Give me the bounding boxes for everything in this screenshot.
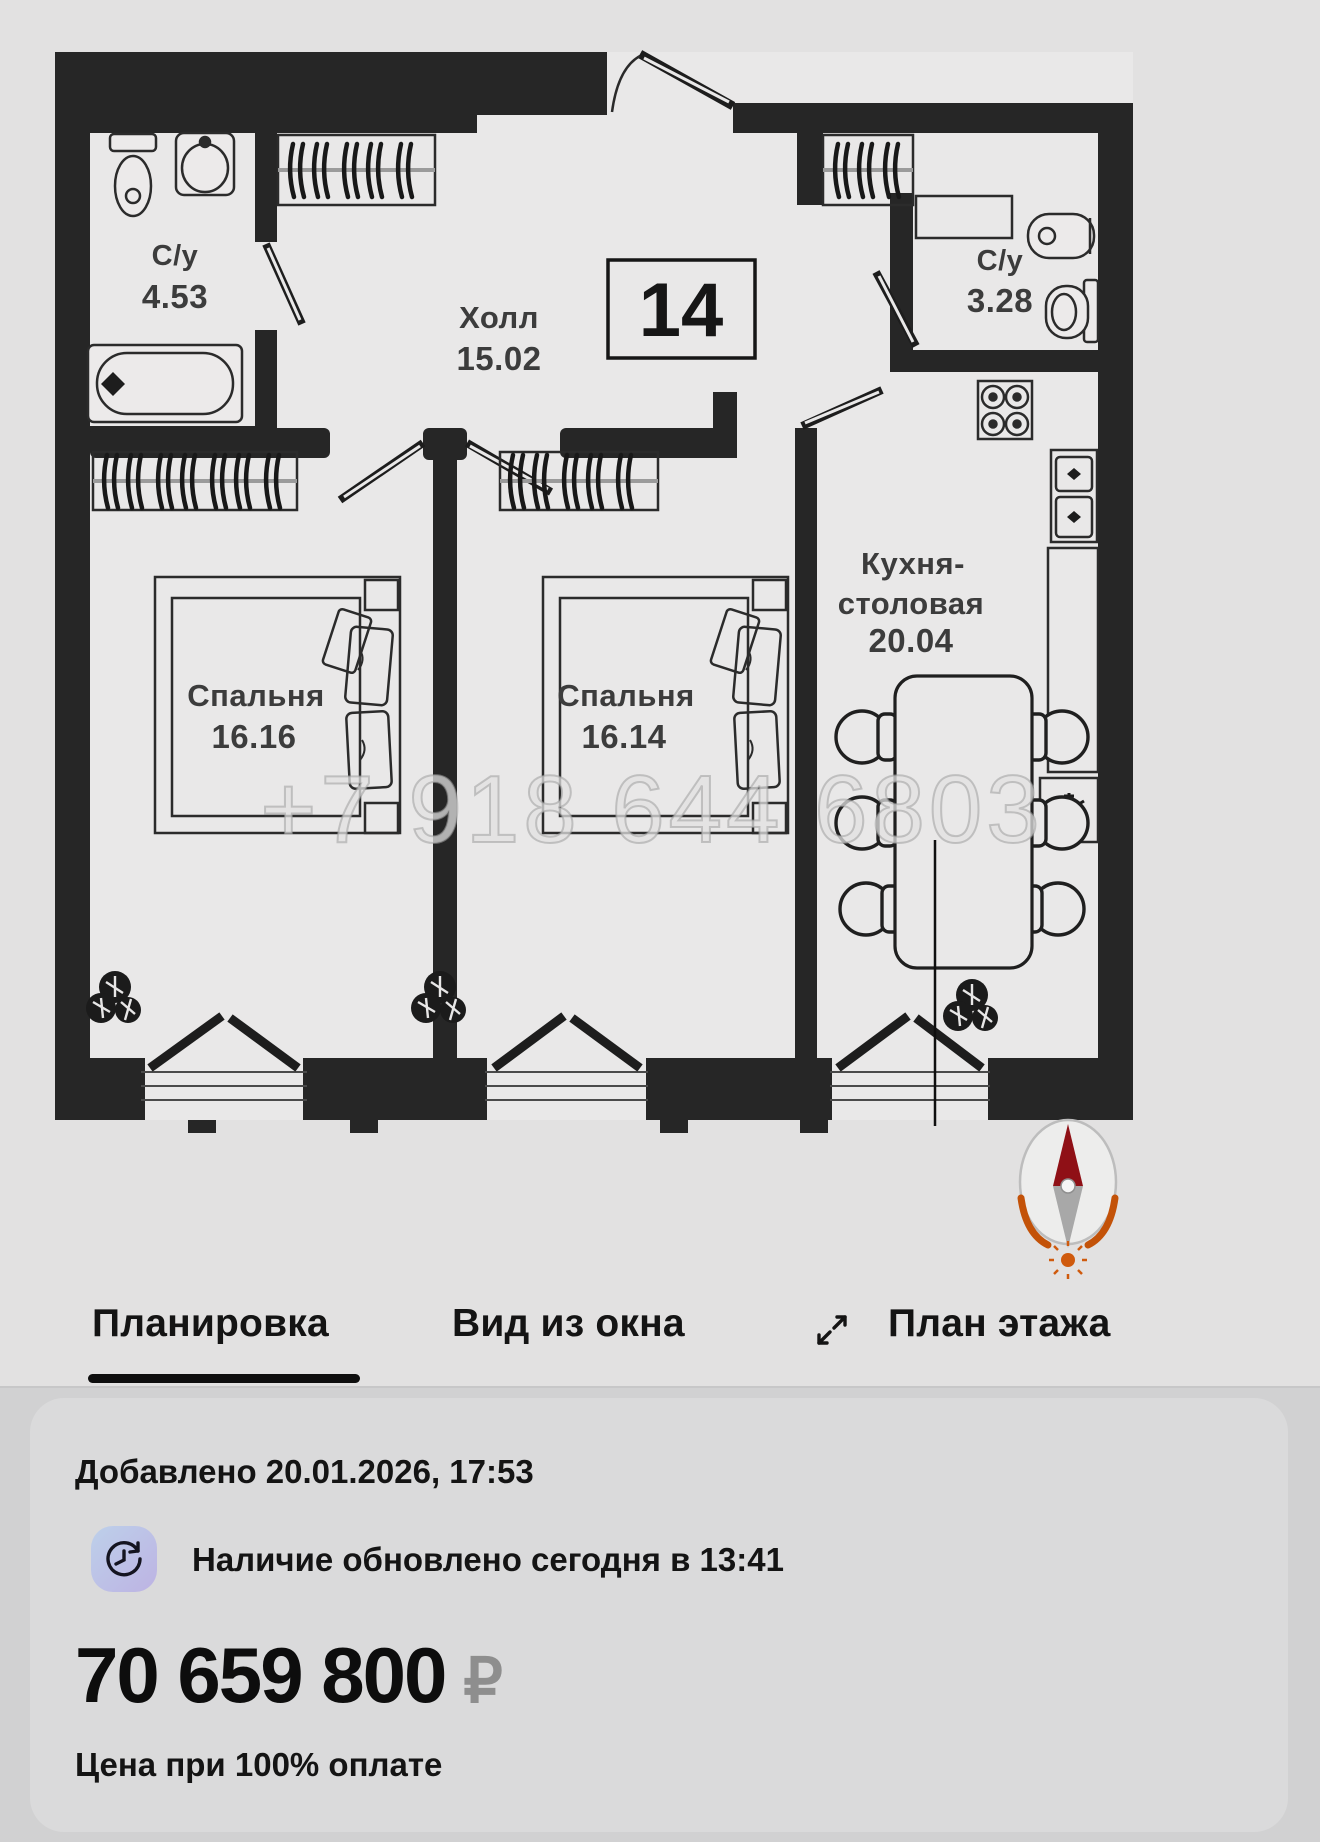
compass-icon [1020,1120,1116,1279]
price-row: 70 659 800 ₽ [75,1630,503,1721]
wardrobe-hall-left-icon [278,135,435,205]
room-area: 15.02 [456,340,541,377]
room-name: столовая [838,586,984,621]
floorplan-image[interactable]: 14 С/у 4.53 Холл 15.02 С/у 3.28 Спальня … [0,0,1320,1290]
room-name: Спальня [187,678,324,713]
price-card: Добавлено 20.01.2026, 17:53 Наличие обно… [30,1398,1288,1832]
price-value: 70 659 800 [75,1630,445,1721]
toilet-icon [1046,280,1098,342]
watermark-phone: +7 918 644 6803 [260,756,1043,863]
listing-page: 14 С/у 4.53 Холл 15.02 С/у 3.28 Спальня … [0,0,1320,1842]
added-date: Добавлено 20.01.2026, 17:53 [75,1453,534,1491]
room-area: 4.53 [142,278,208,315]
room-name: Кухня- [861,546,965,581]
expand-icon[interactable] [808,1306,856,1354]
unit-number-box: 14 [608,260,755,358]
floorplan-svg: 14 С/у 4.53 Холл 15.02 С/у 3.28 Спальня … [0,0,1320,1290]
room-name: С/у [977,245,1024,277]
tab-plan-etazha[interactable]: План этажа [888,1302,1111,1346]
room-area: 16.14 [581,718,666,755]
sink-icon [1028,214,1094,258]
tab-vid-iz-okna[interactable]: Вид из окна [452,1302,685,1346]
active-tab-underline [88,1374,360,1383]
room-area: 16.16 [211,718,296,755]
availability-text: Наличие обновлено сегодня в 13:41 [192,1541,784,1579]
unit-number: 14 [639,268,724,353]
room-name: С/у [152,240,199,272]
price-note: Цена при 100% оплате [75,1746,442,1784]
room-name: Спальня [557,678,694,713]
sink-icon [176,133,234,195]
currency-symbol: ₽ [463,1644,502,1717]
room-name: Холл [459,300,539,335]
details-section: Добавлено 20.01.2026, 17:53 Наличие обно… [0,1388,1320,1842]
bathtub-icon [88,345,242,422]
tab-planirovka[interactable]: Планировка [92,1302,329,1346]
clock-refresh-icon [103,1538,145,1580]
view-tabs: Планировка Вид из окна План этажа [0,1290,1320,1386]
room-area: 3.28 [967,282,1033,319]
chair-icon [840,883,901,935]
availability-badge [91,1526,157,1592]
room-area: 20.04 [868,622,953,659]
